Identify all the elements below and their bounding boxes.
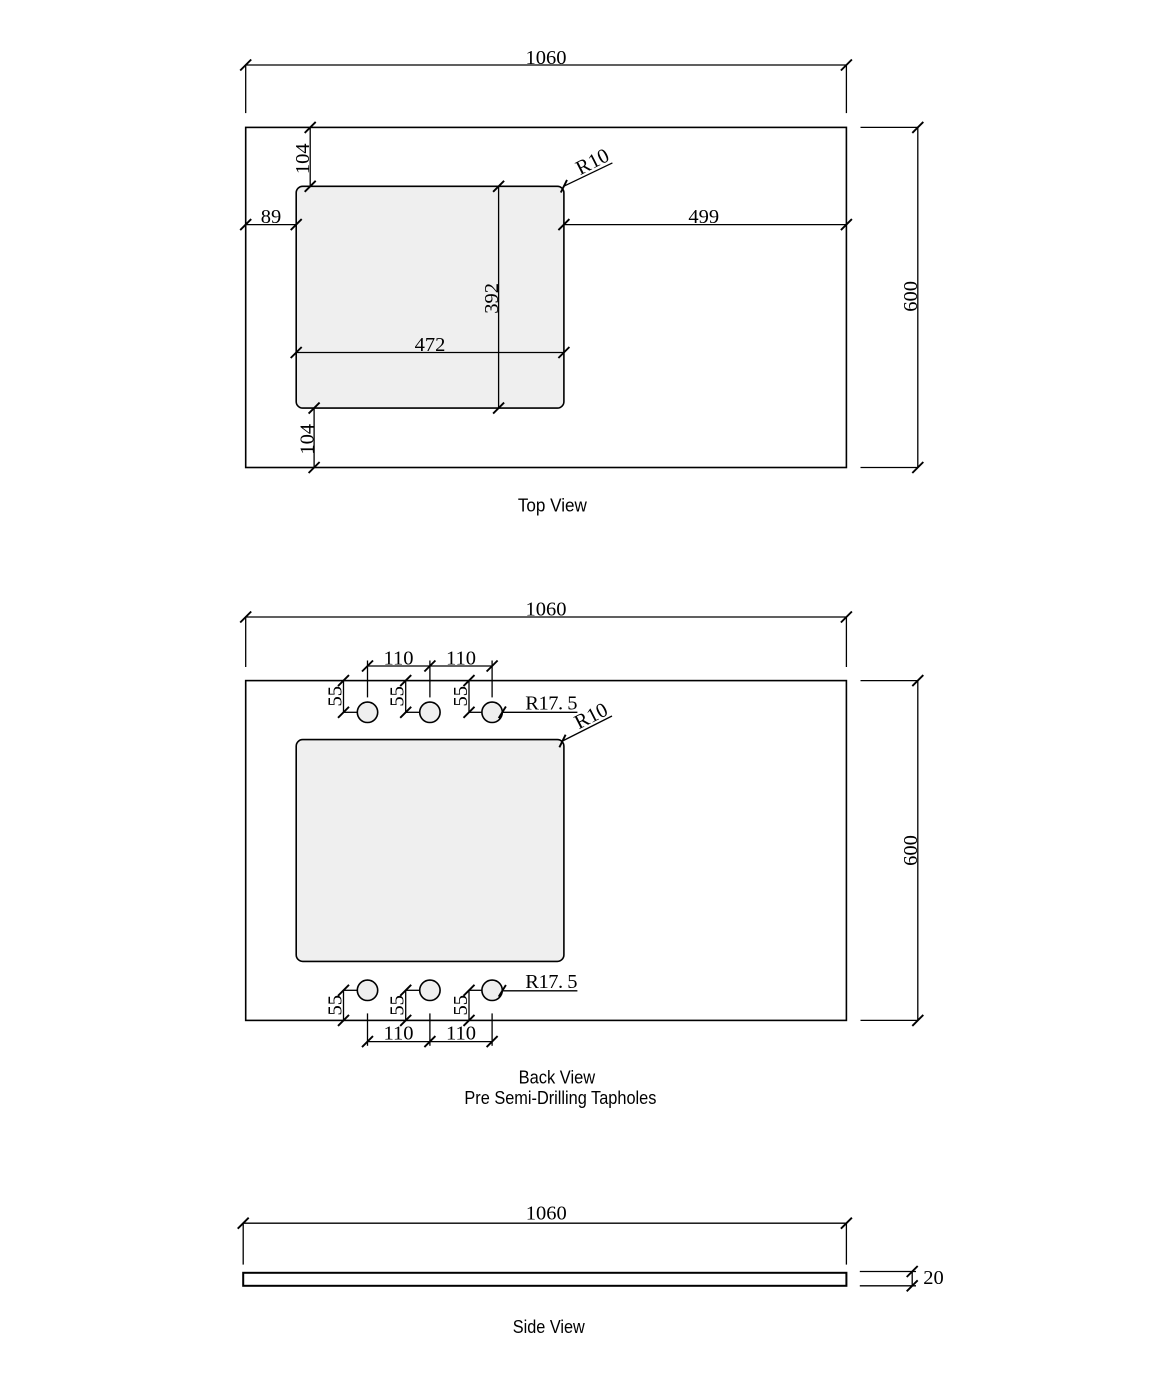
svg-text:110: 110 [446, 1023, 476, 1045]
svg-text:R17. 5: R17. 5 [525, 692, 577, 714]
svg-text:472: 472 [415, 334, 446, 356]
svg-text:600: 600 [900, 281, 922, 312]
svg-text:20: 20 [923, 1267, 944, 1289]
svg-text:104: 104 [297, 424, 319, 455]
svg-text:104: 104 [292, 143, 314, 174]
svg-text:600: 600 [900, 835, 922, 866]
svg-text:55: 55 [450, 995, 472, 1016]
svg-text:Pre Semi-Drilling Tapholes: Pre Semi-Drilling Tapholes [464, 1087, 656, 1108]
svg-text:392: 392 [481, 283, 503, 314]
svg-text:55: 55 [450, 686, 472, 707]
svg-text:110: 110 [384, 648, 414, 670]
svg-text:1060: 1060 [526, 599, 567, 621]
svg-text:Back View: Back View [519, 1067, 596, 1088]
svg-text:1060: 1060 [526, 1203, 567, 1225]
svg-text:110: 110 [384, 1023, 414, 1045]
svg-text:55: 55 [387, 995, 409, 1016]
svg-text:Side View: Side View [513, 1316, 586, 1337]
svg-text:R17. 5: R17. 5 [525, 971, 577, 993]
svg-text:1060: 1060 [526, 47, 567, 69]
svg-text:55: 55 [325, 686, 347, 707]
svg-text:499: 499 [688, 206, 719, 228]
svg-text:55: 55 [325, 995, 347, 1016]
svg-text:55: 55 [387, 686, 409, 707]
svg-text:89: 89 [261, 206, 282, 228]
svg-text:110: 110 [446, 648, 476, 670]
svg-text:Top View: Top View [518, 494, 588, 515]
